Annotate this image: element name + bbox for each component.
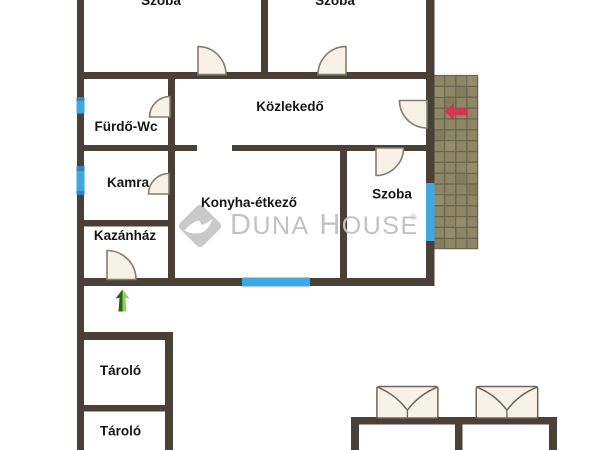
svg-text:DUNA HOUSE: DUNA HOUSE [230, 209, 419, 241]
svg-text:Szoba: Szoba [315, 0, 355, 8]
svg-text:Szoba: Szoba [141, 0, 181, 8]
svg-text:Kazánház: Kazánház [94, 228, 157, 243]
svg-text:Kamra: Kamra [107, 175, 150, 190]
svg-text:Konyha-étkező: Konyha-étkező [201, 195, 297, 210]
svg-text:Közlekedő: Közlekedő [256, 99, 324, 114]
svg-text:Tároló: Tároló [100, 424, 141, 439]
svg-text:Szoba: Szoba [372, 187, 412, 202]
svg-text:Fürdő-Wc: Fürdő-Wc [95, 119, 158, 134]
svg-text:Tároló: Tároló [100, 363, 141, 378]
svg-text:®: ® [410, 212, 417, 222]
